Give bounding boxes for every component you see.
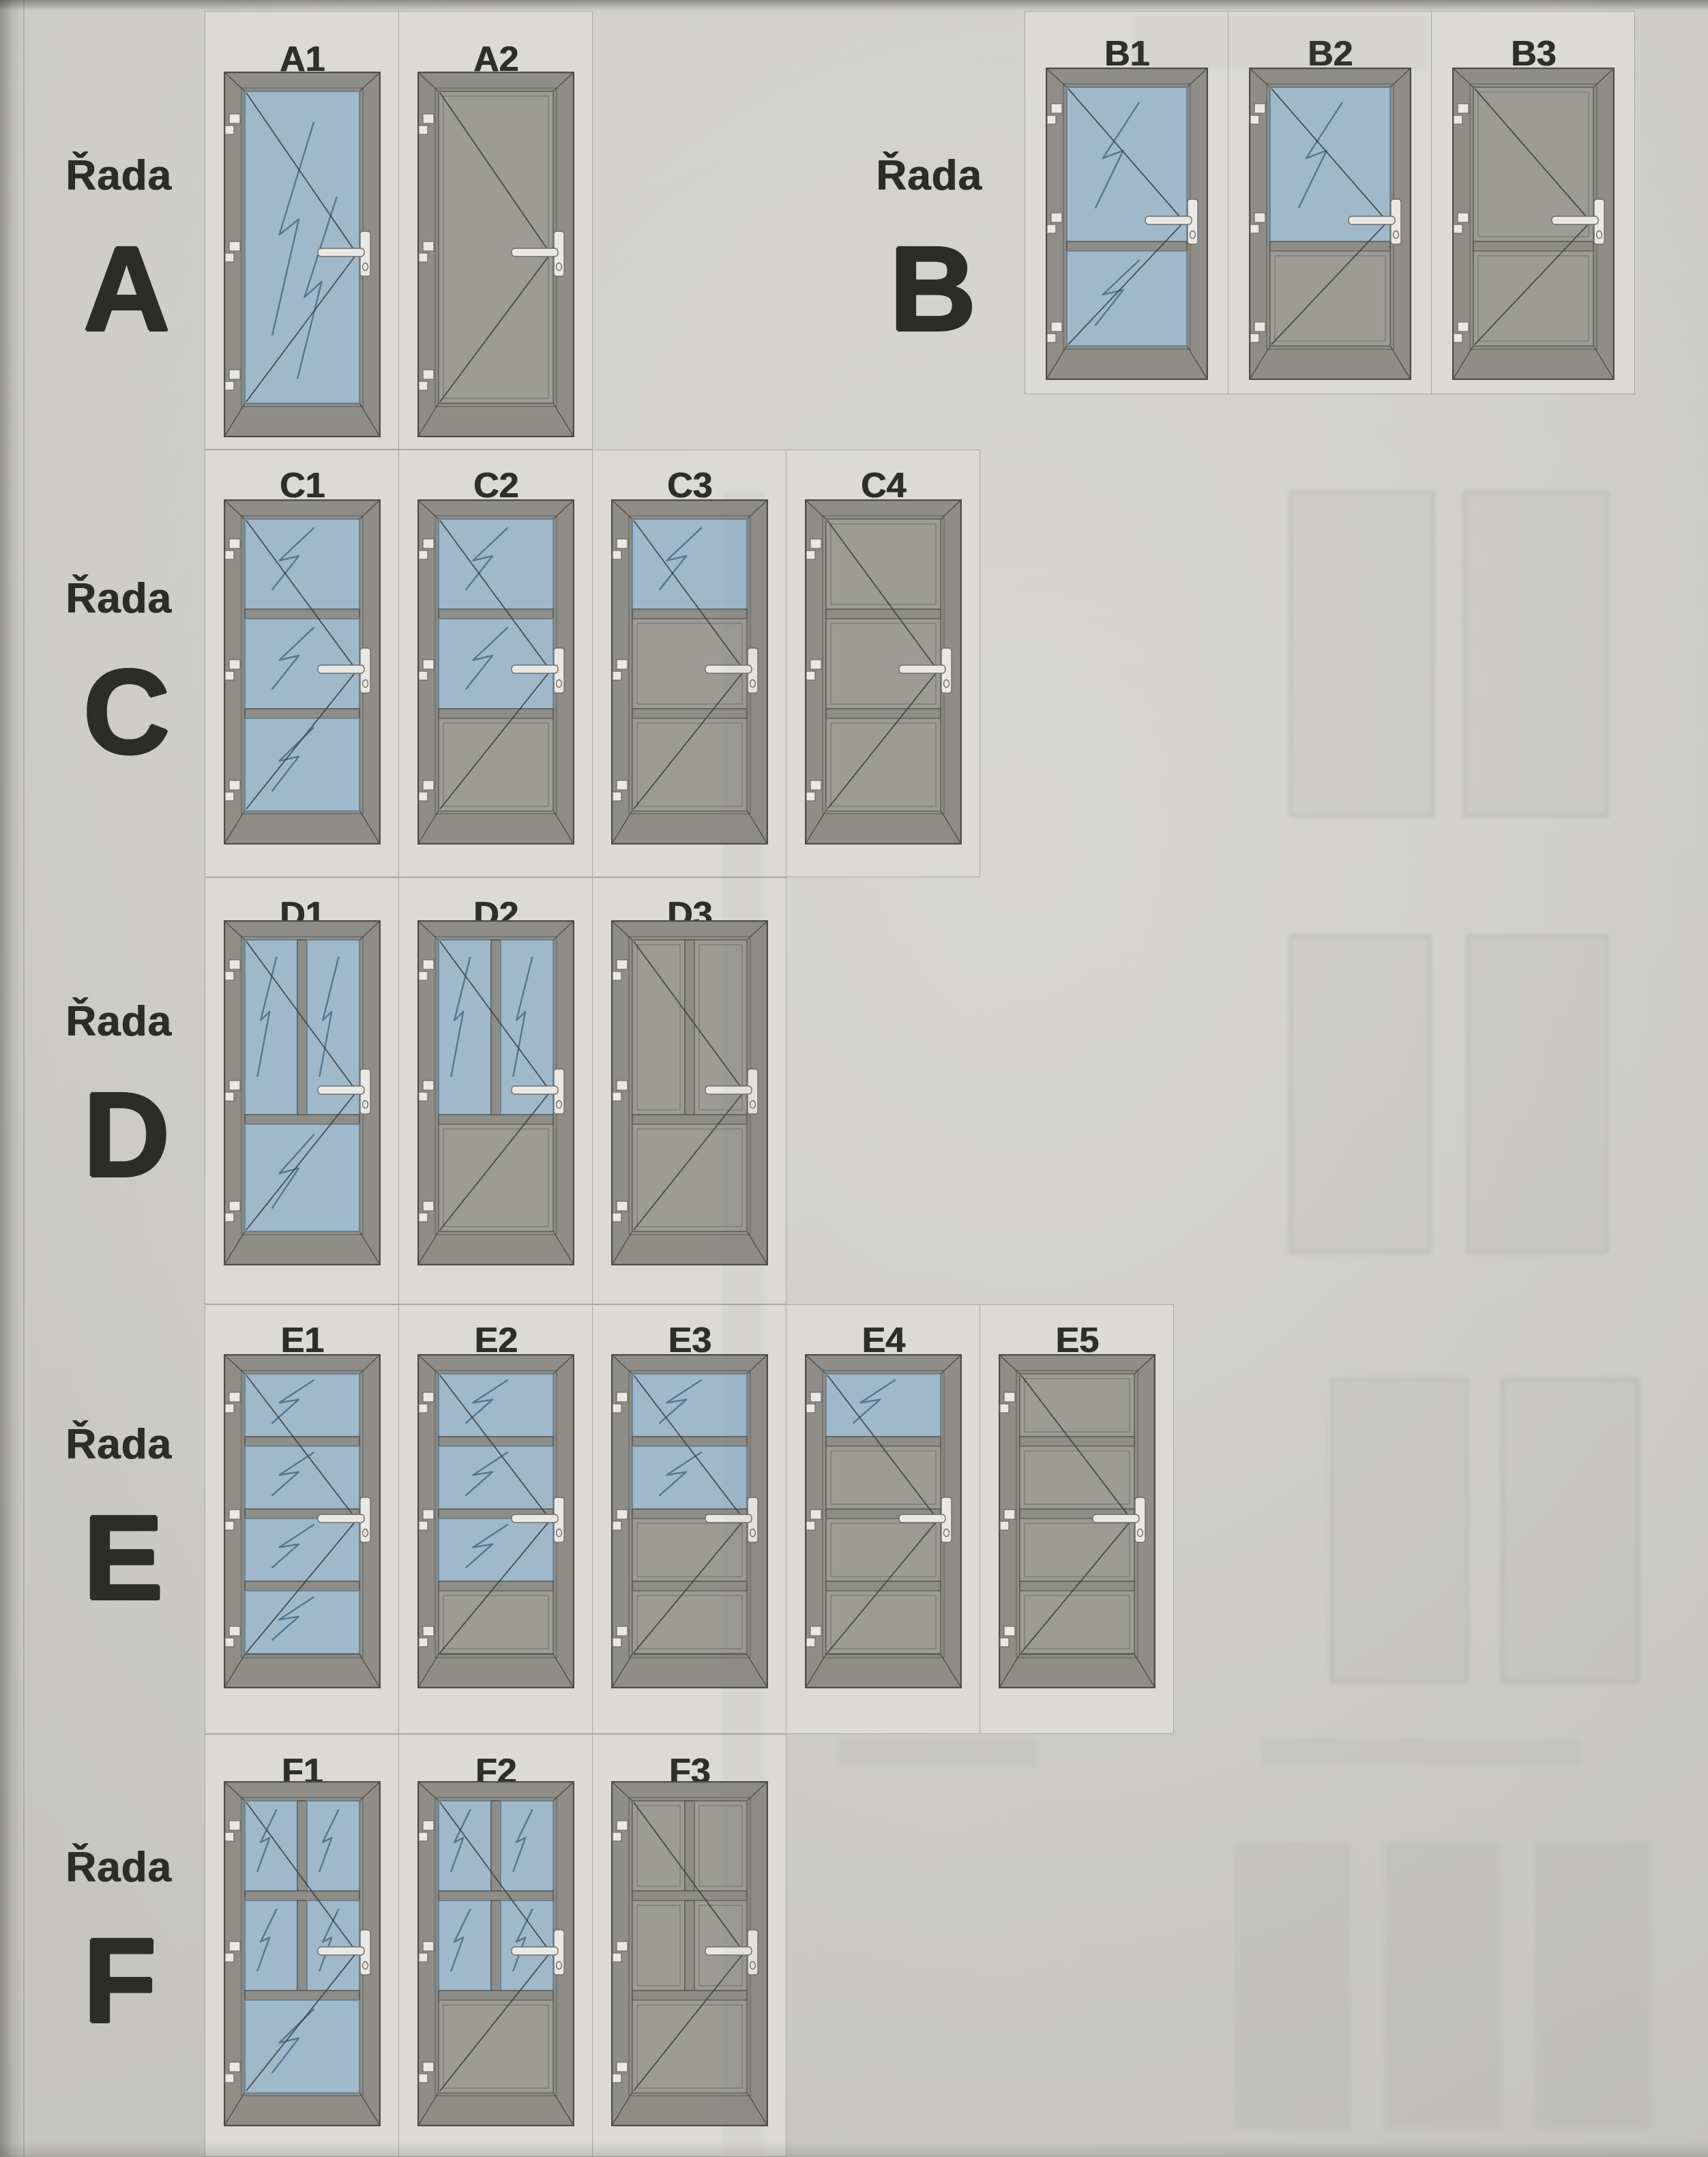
- door-mullion: [685, 940, 694, 1115]
- page-bottom-shadow: [0, 2142, 1708, 2157]
- showthrough-ghost: [1132, 16, 1426, 70]
- row-letter: E: [83, 1498, 163, 1618]
- door-figure: [805, 1354, 962, 1688]
- row-letter: D: [83, 1075, 170, 1195]
- row-letter: F: [83, 1921, 157, 2041]
- glass-pane: [245, 1591, 359, 1654]
- door-cell-f1: F1: [205, 1734, 399, 2157]
- showthrough-ghost: [1467, 935, 1608, 1254]
- page-margin-line: [23, 0, 25, 2157]
- door-rail: [826, 609, 941, 619]
- door-rail: [439, 1437, 553, 1446]
- door-cell-e1: E1: [205, 1304, 399, 1734]
- door-cell-a2: A2: [398, 11, 593, 450]
- row-label-prefix: Řada: [65, 1843, 172, 1892]
- panel-pane: [439, 1124, 553, 1231]
- glass-pane: [245, 619, 359, 709]
- door-figure: [224, 1354, 381, 1688]
- row-label-prefix: Řada: [65, 997, 172, 1046]
- glass-pane: [439, 1446, 553, 1509]
- panel-pane: [1020, 1591, 1134, 1654]
- door-figure: [999, 1354, 1155, 1688]
- row-letter: A: [83, 229, 170, 349]
- row-label-prefix: Řada: [65, 151, 172, 200]
- page-top-shadow: [0, 0, 1708, 11]
- glass-pane: [439, 940, 491, 1115]
- glass-pane: [1067, 251, 1187, 346]
- panel-pane: [1020, 1446, 1134, 1509]
- glass-pane: [245, 1801, 297, 1891]
- door-rail: [245, 609, 359, 619]
- glass-pane: [245, 1124, 359, 1231]
- door-figure: [224, 920, 381, 1265]
- glass-pane: [826, 1374, 941, 1437]
- door-figure: [417, 920, 574, 1265]
- showthrough-ghost: [1385, 1842, 1501, 2128]
- catalog-page: ŘadaAA1A2ŘadaBB1B2B3ŘadaCC1C2C3C4ŘadaDD1…: [0, 0, 1708, 2157]
- door-mullion: [297, 940, 307, 1115]
- door-rail: [439, 1991, 553, 2000]
- door-cell-c2: C2: [398, 450, 593, 877]
- glass-pane: [307, 1801, 359, 1891]
- showthrough-ghost: [1289, 935, 1431, 1254]
- door-rail: [245, 1437, 359, 1446]
- door-rail: [439, 1115, 553, 1124]
- door-cell-b3: B3: [1431, 11, 1635, 394]
- door-rail: [245, 1891, 359, 1901]
- row-label-prefix: Řada: [876, 151, 982, 200]
- glass-pane: [245, 91, 359, 403]
- page-left-shadow: [0, 0, 23, 2157]
- door-figure: [417, 499, 574, 845]
- door-cell-c1: C1: [205, 450, 399, 877]
- door-rail: [439, 709, 553, 718]
- glass-pane: [439, 619, 553, 709]
- door-cell-d1: D1: [205, 877, 399, 1304]
- showthrough-ghost: [723, 491, 764, 2156]
- door-rail: [826, 1437, 941, 1446]
- glass-pane: [245, 1446, 359, 1509]
- panel-pane: [826, 1591, 941, 1654]
- glass-pane: [439, 1901, 491, 1991]
- showthrough-ghost: [839, 1738, 1037, 1767]
- door-mullion: [685, 1901, 694, 1991]
- panel-pane: [1020, 1374, 1134, 1437]
- door-mullion: [491, 940, 501, 1115]
- panel-pane: [632, 1801, 685, 1891]
- glass-pane: [501, 1801, 553, 1891]
- door-figure: [1452, 68, 1615, 380]
- glass-pane: [245, 2000, 359, 2093]
- panel-pane: [826, 1518, 941, 1581]
- door-rail: [1020, 1437, 1134, 1446]
- panel-pane: [439, 91, 553, 403]
- door-figure: [224, 72, 381, 437]
- door-figure: [1249, 68, 1411, 380]
- row-letter: C: [83, 652, 170, 772]
- door-cell-c4: C4: [786, 450, 980, 877]
- panel-pane: [1270, 251, 1390, 346]
- panel-pane: [439, 718, 553, 811]
- glass-pane: [245, 1901, 297, 1991]
- glass-pane: [439, 1518, 553, 1581]
- door-figure: [417, 1781, 574, 2126]
- panel-pane: [439, 2000, 553, 2093]
- glass-pane: [245, 1374, 359, 1437]
- door-mullion: [491, 1901, 501, 1991]
- panel-pane: [826, 718, 941, 811]
- door-figure: [417, 72, 574, 437]
- row-letter: B: [889, 229, 976, 349]
- door-rail: [826, 709, 941, 718]
- door-figure: [805, 499, 962, 845]
- door-figure: [224, 1781, 381, 2126]
- door-figure: [417, 1354, 574, 1688]
- showthrough-ghost: [1535, 1842, 1651, 2128]
- door-rail: [245, 1991, 359, 2000]
- door-rail: [1270, 241, 1390, 251]
- panel-pane: [826, 1446, 941, 1509]
- door-cell-e5: E5: [980, 1304, 1174, 1734]
- door-cell-f2: F2: [398, 1734, 593, 2157]
- door-cell-e2: E2: [398, 1304, 593, 1734]
- glass-pane: [439, 1801, 491, 1891]
- door-figure: [224, 499, 381, 845]
- showthrough-ghost: [1262, 1738, 1582, 1767]
- door-rail: [245, 1115, 359, 1124]
- door-rail: [245, 709, 359, 718]
- door-cell-d2: D2: [398, 877, 593, 1304]
- showthrough-ghost: [1330, 1378, 1469, 1684]
- glass-pane: [439, 1374, 553, 1437]
- showthrough-ghost: [1289, 491, 1434, 817]
- row-label-prefix: Řada: [65, 1420, 172, 1469]
- door-rail: [1473, 241, 1593, 251]
- door-cell-e4: E4: [786, 1304, 980, 1734]
- panel-pane: [439, 1591, 553, 1654]
- panel-pane: [632, 940, 685, 1115]
- row-label-prefix: Řada: [65, 574, 172, 623]
- showthrough-ghost: [1501, 1378, 1639, 1684]
- panel-pane: [1473, 251, 1593, 346]
- glass-pane: [245, 718, 359, 811]
- panel-pane: [632, 1901, 685, 1991]
- showthrough-ghost: [1235, 1842, 1351, 2128]
- door-rail: [1067, 241, 1187, 251]
- panel-pane: [1020, 1518, 1134, 1581]
- door-cell-a1: A1: [205, 11, 399, 450]
- door-figure: [1046, 68, 1208, 380]
- panel-pane: [826, 619, 941, 709]
- showthrough-ghost: [1463, 491, 1608, 817]
- door-rail: [439, 1891, 553, 1901]
- glass-pane: [245, 1518, 359, 1581]
- door-rail: [439, 609, 553, 619]
- door-mullion: [297, 1901, 307, 1991]
- glass-pane: [245, 940, 297, 1115]
